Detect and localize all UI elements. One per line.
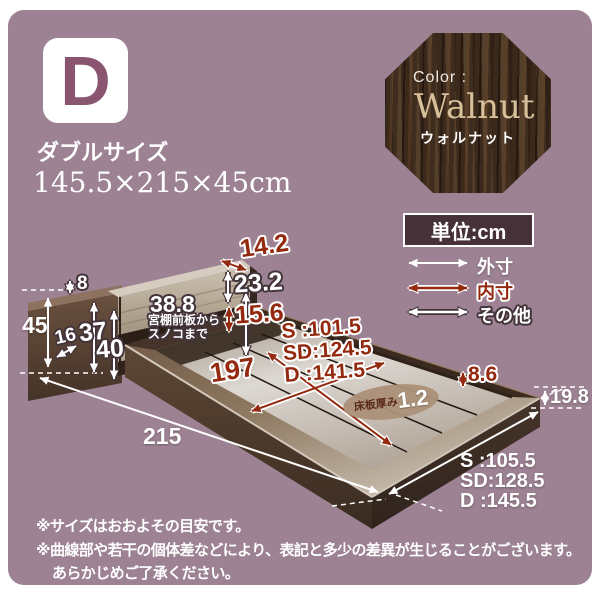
footnote-1: ※サイズはおおよその目安です。 bbox=[36, 515, 250, 536]
dim-outer-widths: S :105.5 SD:128.5 D :145.5 bbox=[460, 451, 545, 511]
dim-base-height: 16 bbox=[53, 325, 78, 349]
color-swatch-octagon: Color : Walnut ウォルナット bbox=[385, 33, 551, 193]
legend-arrows bbox=[409, 263, 467, 312]
size-letter: D bbox=[60, 46, 111, 116]
dim-total-height: 45 bbox=[22, 313, 48, 337]
legend-inner-label: 内寸 bbox=[477, 278, 513, 304]
size-dimensions: 145.5×215×45cm bbox=[33, 166, 291, 199]
legend-other-label: その他 bbox=[477, 302, 531, 328]
dim-shelf-note-1: 宮棚前板から bbox=[148, 314, 220, 327]
color-name-ja: ウォルナット bbox=[420, 128, 516, 148]
dim-outer-width-d: D :145.5 bbox=[460, 491, 545, 511]
board-thickness-value: 1.2 bbox=[396, 385, 430, 415]
dim-rim-height: 19.8 bbox=[550, 387, 589, 408]
footnote-2: ※曲線部や若干の個体差などにより、表記と多少の差異が生じることがございます。 bbox=[36, 539, 580, 560]
dim-outer-width-s: S :105.5 bbox=[460, 451, 545, 471]
dim-inner-widths: S :101.5 SD:124.5 D :141.5 bbox=[281, 315, 374, 387]
dim-inner-rim-depth: 8.6 bbox=[468, 364, 497, 386]
dim-top-edge: 8 bbox=[77, 274, 88, 294]
color-label: Color : bbox=[413, 69, 467, 87]
color-name-en: Walnut bbox=[414, 87, 535, 127]
dim-inner-length: 197 bbox=[208, 353, 257, 388]
board-thickness-label: 床板厚み bbox=[353, 393, 399, 414]
footnote-3: あらかじめご了承ください。 bbox=[52, 562, 239, 583]
dim-shelf-note-2: スノコまで bbox=[148, 328, 208, 341]
dim-height-40: 40 bbox=[95, 335, 125, 363]
dim-outer-length: 215 bbox=[143, 424, 181, 448]
unit-box: 単位:cm bbox=[403, 213, 534, 247]
dim-outer-width-sd: SD:128.5 bbox=[460, 471, 545, 491]
size-name: ダブルサイズ bbox=[37, 135, 168, 167]
size-letter-badge: D bbox=[43, 38, 128, 123]
product-size-infographic: D ダブルサイズ 145.5×215×45cm Color : Walnut ウ… bbox=[0, 0, 600, 600]
legend-outer-label: 外寸 bbox=[477, 253, 513, 279]
dim-panel-gap: 15.6 bbox=[234, 299, 284, 329]
dim-headboard-height: 23.2 bbox=[233, 268, 283, 298]
